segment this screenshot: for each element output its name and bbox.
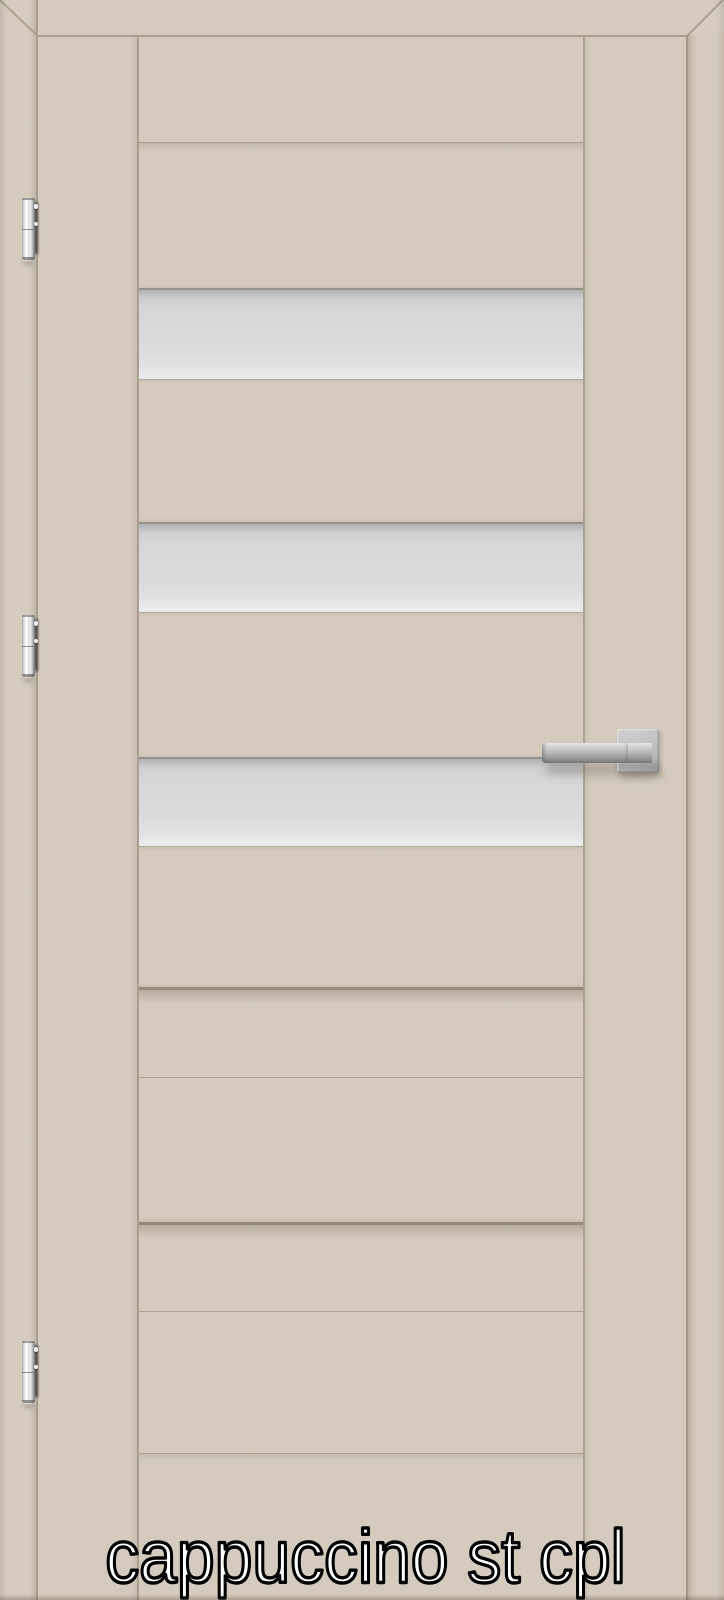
svg-text:cappuccino st cpl: cappuccino st cpl [105,1515,626,1599]
